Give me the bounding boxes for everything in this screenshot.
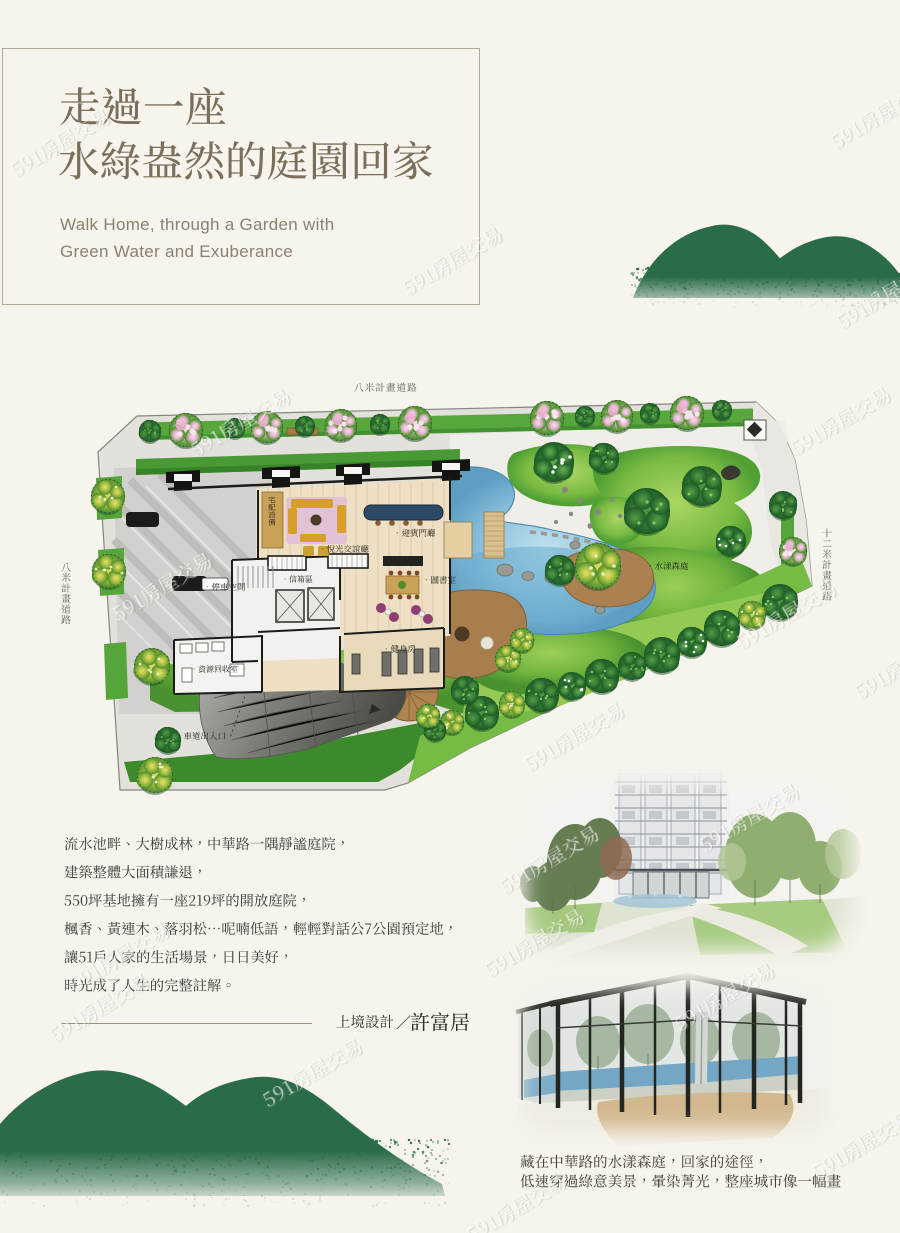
svg-text:Green Water and Exuberance: Green Water and Exuberance [60, 242, 293, 261]
svg-text:Walk Home, through a Garden wi: Walk Home, through a Garden with [60, 215, 334, 234]
